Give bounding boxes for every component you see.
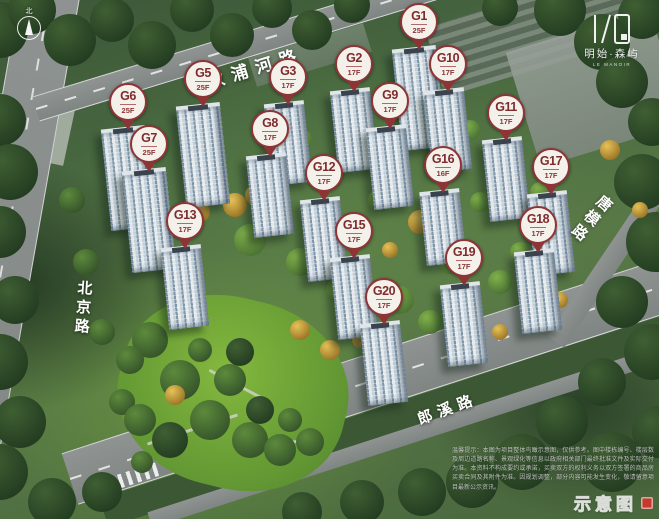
building-G18	[514, 248, 562, 334]
pin-id-label: G2	[346, 52, 362, 65]
pin-divider	[435, 167, 451, 168]
pin-divider	[346, 66, 362, 67]
pin-id-label: G12	[313, 161, 335, 174]
aerial-masterplan: G125FG217FG317FG525FG625FG725FG817FG917F…	[0, 0, 659, 519]
tree	[0, 444, 28, 500]
tree	[382, 242, 398, 258]
tree	[128, 21, 176, 69]
pin-id-label: G16	[432, 153, 454, 166]
tree	[90, 0, 134, 42]
pin-divider	[177, 223, 193, 224]
pin-id-label: G20	[373, 285, 395, 298]
pin-id-label: G6	[120, 90, 136, 103]
pin-floor-label: 17F	[378, 302, 391, 310]
pin-floor-label: 17F	[179, 226, 192, 234]
pin-divider	[141, 146, 157, 147]
tree	[340, 480, 384, 519]
tree	[0, 276, 39, 324]
project-logo: 明始·森屿 LE MANOIR	[573, 12, 651, 67]
tree	[596, 276, 648, 328]
building-pin-G13: G1317F	[166, 202, 204, 240]
tree	[210, 13, 254, 57]
pin-id-label: G8	[262, 117, 278, 130]
tree	[488, 270, 512, 294]
tree	[152, 422, 188, 458]
pin-divider	[382, 103, 398, 104]
tree	[44, 14, 96, 66]
tree	[73, 249, 99, 275]
tree	[59, 187, 85, 213]
tree	[536, 396, 588, 448]
tree	[290, 320, 310, 340]
pin-id-label: G19	[453, 246, 475, 259]
pin-divider	[376, 299, 392, 300]
building-pin-G18: G1817F	[519, 206, 557, 244]
pin-floor-label: 17F	[282, 82, 295, 90]
pin-divider	[316, 175, 332, 176]
pin-id-label: G9	[382, 89, 398, 102]
tree	[492, 324, 508, 340]
pin-id-label: G17	[540, 155, 562, 168]
pin-id-label: G11	[495, 101, 516, 114]
compass-needle-icon	[25, 19, 33, 35]
pin-divider	[346, 233, 362, 234]
watermark: 示意图	[574, 490, 653, 515]
tree	[296, 428, 324, 456]
building-G8	[246, 152, 294, 238]
pin-divider	[195, 81, 211, 82]
pin-divider	[440, 66, 456, 67]
building-pin-G12: G1217F	[305, 154, 343, 192]
tree	[89, 319, 115, 345]
road-label-tangmo: 唐模路	[564, 190, 617, 247]
pin-id-label: G7	[141, 132, 157, 145]
pin-divider	[262, 131, 278, 132]
building-G19	[440, 281, 488, 367]
tree	[0, 396, 46, 448]
tree	[398, 468, 446, 516]
tree	[188, 338, 212, 362]
pin-id-label: G3	[280, 65, 296, 78]
pin-floor-label: 17F	[384, 106, 397, 114]
pin-floor-label: 17F	[532, 230, 545, 238]
building-G5	[176, 102, 230, 208]
pin-id-label: G1	[411, 10, 427, 23]
tree	[190, 400, 230, 440]
building-pin-G16: G1616F	[424, 146, 462, 184]
building-pin-G20: G2017F	[365, 278, 403, 316]
pin-divider	[120, 104, 136, 105]
logo-name-cn: 明始·森屿	[573, 46, 651, 61]
tree	[214, 364, 246, 396]
pin-divider	[456, 260, 472, 261]
tree	[632, 202, 648, 218]
logo-mark-icon	[591, 12, 633, 46]
pin-floor-label: 25F	[143, 149, 156, 157]
tree	[170, 0, 214, 32]
building-G9	[366, 124, 414, 210]
tree	[418, 310, 442, 334]
pin-floor-label: 25F	[413, 27, 426, 35]
pin-id-label: G10	[437, 52, 459, 65]
tree	[282, 492, 322, 519]
building-G11	[482, 136, 530, 222]
watermark-text: 示意图	[574, 490, 637, 515]
tree	[578, 358, 626, 406]
building-pin-G8: G817F	[251, 110, 289, 148]
building-pin-G3: G317F	[269, 58, 307, 96]
pin-floor-label: 17F	[500, 118, 513, 126]
tree	[82, 472, 122, 512]
pin-divider	[411, 24, 427, 25]
pin-id-label: G13	[174, 209, 196, 222]
tree	[600, 140, 620, 160]
tree	[246, 396, 274, 424]
tree	[116, 346, 144, 374]
tree	[278, 408, 302, 432]
building-G20	[360, 320, 408, 406]
tree	[0, 334, 28, 390]
pin-floor-label: 17F	[348, 236, 361, 244]
red-seal-icon	[641, 497, 653, 509]
building-pin-G5: G525F	[184, 60, 222, 98]
pin-floor-label: 25F	[122, 107, 135, 115]
building-pin-G6: G625F	[109, 83, 147, 121]
pin-divider	[530, 227, 546, 228]
pin-floor-label: 17F	[442, 69, 455, 77]
pin-floor-label: 17F	[348, 69, 361, 77]
pin-floor-label: 16F	[437, 170, 450, 178]
pin-floor-label: 17F	[458, 263, 471, 271]
tree	[226, 338, 254, 366]
pin-id-label: G18	[527, 213, 549, 226]
pin-floor-label: 17F	[264, 134, 277, 142]
building-pin-G10: G1017F	[429, 45, 467, 83]
tree	[131, 451, 153, 473]
building-pin-G17: G1717F	[532, 148, 570, 186]
road-label-beijing: 北京路	[70, 279, 95, 337]
pin-id-label: G15	[343, 219, 365, 232]
pin-id-label: G5	[195, 67, 211, 80]
building-pin-G11: G1117F	[487, 94, 525, 132]
tree	[264, 434, 296, 466]
compass-north-label: 北	[26, 8, 33, 15]
compass: 北	[17, 16, 41, 40]
pin-divider	[280, 79, 296, 80]
tree	[165, 385, 185, 405]
tree	[232, 422, 268, 458]
tree	[320, 340, 340, 360]
tree	[28, 478, 76, 519]
pin-floor-label: 17F	[318, 178, 331, 186]
building-G13	[161, 244, 209, 330]
building-pin-G1: G125F	[400, 3, 438, 41]
building-pin-G19: G1917F	[445, 239, 483, 277]
pin-floor-label: 25F	[197, 84, 210, 92]
building-pin-G9: G917F	[371, 82, 409, 120]
disclaimer-text: 温馨提示：本图为项目整体鸟瞰示意图，仅供参考。图中楼栋编号、楼层数及周边道路名称…	[452, 447, 654, 493]
pin-floor-label: 17F	[545, 172, 558, 180]
building-pin-G15: G1517F	[335, 212, 373, 250]
logo-name-en: LE MANOIR	[573, 62, 651, 67]
pin-divider	[498, 115, 514, 116]
building-pin-G2: G217F	[335, 45, 373, 83]
tree	[124, 404, 156, 436]
pin-divider	[543, 169, 559, 170]
building-pin-G7: G725F	[130, 125, 168, 163]
